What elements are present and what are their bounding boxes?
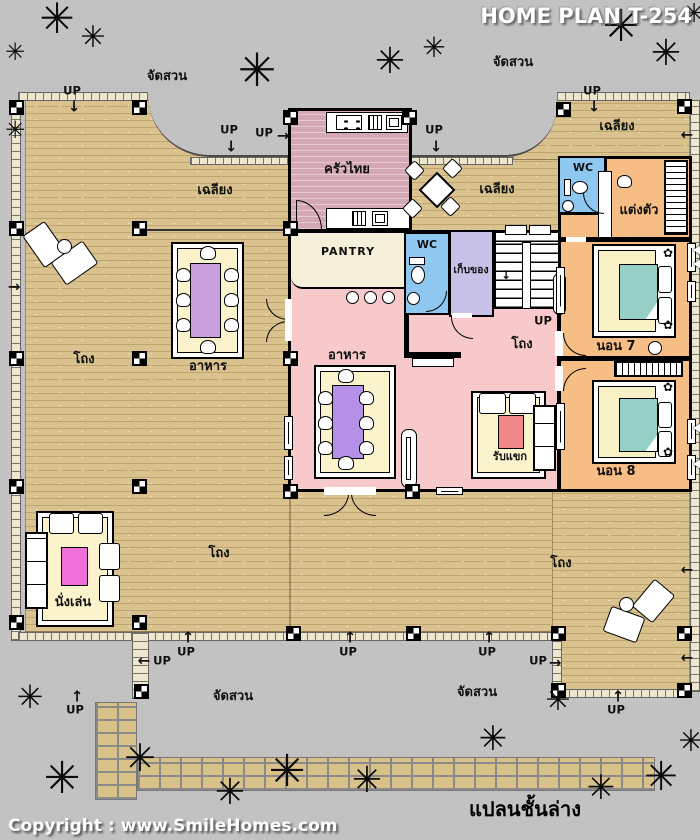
tree-icon: ✳ <box>422 34 445 62</box>
up-label: UP <box>153 655 171 668</box>
left-arrow-icon: ← <box>681 651 694 666</box>
left-arrow-icon: ← <box>138 654 151 669</box>
french-door-gap <box>324 487 376 495</box>
closet <box>614 361 683 377</box>
up-arrow-icon: ↑ <box>71 690 84 705</box>
stair-down-arrow-icon: ↓ <box>501 269 511 281</box>
left-arrow-icon: ← <box>681 563 694 578</box>
toilet-bowl-icon <box>411 266 425 284</box>
tree-icon: ✳ <box>644 757 678 797</box>
stool <box>382 291 395 304</box>
column <box>405 484 420 499</box>
tree-icon: ✳ <box>17 681 44 713</box>
casement-icon <box>693 258 700 270</box>
armchair <box>49 513 74 534</box>
dressing-label: แต่งตัว <box>620 204 659 218</box>
up-label: UP <box>529 655 547 668</box>
tree-icon: ✳ <box>545 686 570 716</box>
tree-icon: ✳ <box>269 750 306 794</box>
column <box>402 110 417 125</box>
column <box>132 479 147 494</box>
toilet-tank-icon <box>564 179 571 196</box>
armchair <box>479 393 506 414</box>
dining-chair <box>338 369 354 383</box>
wc-label: WC <box>573 162 593 174</box>
casement-icon <box>693 244 700 256</box>
door-leaf-slot <box>406 437 411 480</box>
sofa <box>25 532 48 609</box>
coffee-table <box>498 415 524 449</box>
dining-chair <box>359 441 374 455</box>
plant-icon: ✿ <box>663 381 673 393</box>
dressing-chair <box>617 175 632 188</box>
garden-label: จัดสวน <box>147 70 187 84</box>
column <box>677 99 692 114</box>
dining-chair <box>200 246 216 260</box>
column <box>9 351 24 366</box>
dining-chair <box>176 293 191 307</box>
hall-label: โถง <box>73 353 94 367</box>
stool <box>346 291 359 304</box>
tree-icon: ✳ <box>238 47 277 93</box>
sofa <box>533 405 556 471</box>
column <box>132 100 147 115</box>
kitchen-counter-bottom <box>326 208 410 229</box>
entrance-door-leaf <box>529 225 551 235</box>
column <box>677 683 692 698</box>
column <box>9 479 24 494</box>
dining-chair <box>318 416 333 430</box>
column <box>283 351 298 366</box>
pillow <box>658 266 672 293</box>
wc-label: WC <box>417 239 437 251</box>
closet <box>664 160 688 235</box>
dining-label: อาหาร <box>189 360 227 374</box>
door-gap <box>566 237 586 242</box>
right-arrow-icon: → <box>277 129 290 144</box>
right-arrow-icon: → <box>549 656 562 671</box>
entrance-door-leaf <box>505 225 527 235</box>
stair-rail <box>522 242 531 309</box>
floor-plan-page: { "header": { "title": "HOME PLAN T-254"… <box>0 0 700 840</box>
dining-chair <box>318 441 333 455</box>
tree-icon: ✳ <box>124 739 156 777</box>
tree-icon: ✳ <box>215 775 245 811</box>
dining-chair <box>338 456 354 470</box>
pantry-room <box>291 233 404 289</box>
sink-icon <box>372 211 388 226</box>
steps-porch-left <box>190 157 290 165</box>
stool <box>364 291 377 304</box>
column <box>551 626 566 641</box>
porch-label: เฉลียง <box>479 183 514 197</box>
up-label: UP <box>478 646 496 659</box>
column <box>9 100 24 115</box>
column <box>556 102 571 117</box>
dishrack-icon <box>368 115 382 130</box>
side-table <box>648 341 662 355</box>
tree-icon: ✳ <box>479 722 508 756</box>
column <box>283 110 298 125</box>
down-arrow-icon: ↓ <box>588 100 601 115</box>
steps-right-porch-top <box>556 92 690 101</box>
page-title: HOME PLAN T-254 <box>480 4 692 28</box>
bed-blanket <box>619 264 658 320</box>
up-label: UP <box>220 124 238 137</box>
up-label: UP <box>177 646 195 659</box>
storage-label: เก็บของ <box>453 265 488 277</box>
window <box>687 281 696 302</box>
window <box>284 416 293 450</box>
window <box>284 456 293 480</box>
down-arrow-icon: ↓ <box>430 140 443 155</box>
up-arrow-icon: ↑ <box>344 631 357 646</box>
up-label: UP <box>339 646 357 659</box>
tree-icon: ✳ <box>352 763 382 799</box>
sitting-table <box>61 547 88 586</box>
steps-left-edge <box>11 100 21 641</box>
up-label: UP <box>583 85 601 98</box>
washbasin-icon <box>407 292 420 305</box>
column <box>132 615 147 630</box>
column <box>677 626 692 641</box>
up-arrow-icon: ↑ <box>612 690 625 705</box>
column <box>132 221 147 236</box>
tree-icon: ✳ <box>80 23 105 53</box>
up-arrow-icon: ↑ <box>483 631 496 646</box>
stair-up-label: UP <box>534 315 552 328</box>
dining-chair <box>359 416 374 430</box>
side-table <box>57 239 72 254</box>
casement-icon <box>693 422 700 434</box>
dining-chair <box>176 268 191 282</box>
garden-label: จัดสวน <box>457 686 497 700</box>
dishrack-icon <box>352 211 366 226</box>
stove-icon <box>336 115 362 130</box>
bed-blanket <box>619 398 658 452</box>
bedroom8-label: นอน 8 <box>596 465 635 479</box>
dining-chair <box>200 340 216 354</box>
plant-icon: ✿ <box>663 247 673 259</box>
column <box>406 626 421 641</box>
plant-icon: ✿ <box>663 319 673 331</box>
column <box>283 221 298 236</box>
guest-label: รับแขก <box>493 451 527 463</box>
up-label: UP <box>425 124 443 137</box>
column <box>9 615 24 630</box>
left-arrow-icon: ← <box>681 128 694 143</box>
window <box>556 403 565 450</box>
down-arrow-icon: ↓ <box>225 140 238 155</box>
column <box>9 221 24 236</box>
porch-label: เฉลียง <box>197 184 232 198</box>
porch-label: เฉลียง <box>599 120 634 134</box>
hall-label: โถง <box>208 547 229 561</box>
bedroom7-label: นอน 7 <box>596 340 635 354</box>
window <box>556 267 565 314</box>
dining-chair <box>176 318 191 332</box>
column <box>134 684 149 699</box>
porch-edge-line <box>140 229 292 231</box>
tree-icon: ✳ <box>39 0 74 40</box>
toilet-tank-icon <box>409 257 425 265</box>
door-gap <box>555 366 563 391</box>
column <box>283 484 298 499</box>
washbasin-icon <box>562 200 574 212</box>
tree-icon: ✳ <box>678 727 700 757</box>
column <box>286 626 301 641</box>
french-door-gap <box>285 299 292 341</box>
garden-label: จัดสวน <box>213 690 253 704</box>
armchair <box>78 513 103 534</box>
outdoor-dining-table <box>190 263 221 338</box>
right-arrow-icon: → <box>8 280 21 295</box>
down-arrow-icon: ↓ <box>68 100 81 115</box>
sink-icon <box>386 115 402 130</box>
window <box>436 487 463 495</box>
column <box>132 351 147 366</box>
up-label: UP <box>255 127 273 140</box>
tree-icon: ✳ <box>5 118 25 142</box>
pillow <box>658 402 672 428</box>
hall-label: โถง <box>511 338 532 352</box>
door-gap <box>555 331 563 356</box>
dining-chair <box>318 391 333 405</box>
pantry-label: PANTRY <box>321 246 375 258</box>
shelf <box>412 358 454 367</box>
tree-icon: ✳ <box>5 40 25 64</box>
up-label: UP <box>607 704 625 717</box>
tree-icon: ✳ <box>651 36 681 72</box>
dining-label: อาหาร <box>328 349 366 363</box>
up-label: UP <box>63 85 81 98</box>
plant-icon: ✿ <box>663 446 673 458</box>
garden-label: จัดสวน <box>493 56 533 70</box>
tree-icon: ✳ <box>44 757 81 801</box>
armchair <box>99 543 120 570</box>
dining-chair <box>359 391 374 405</box>
up-arrow-icon: ↑ <box>182 631 195 646</box>
armchair <box>99 575 120 602</box>
side-table <box>619 597 634 612</box>
dining-chair <box>224 318 239 332</box>
kitchen-label: ครัวไทย <box>324 163 370 177</box>
plan-caption: แปลนชั้นล่าง <box>425 793 625 825</box>
copyright-text: Copyright : www.SmileHomes.com <box>8 816 337 836</box>
sitting-label: นั่งเล่น <box>55 596 92 610</box>
casement-icon <box>693 458 700 470</box>
dining-chair <box>224 268 239 282</box>
floor-plan: ครัวไทย PANTRY WC เก็บของ ↓ UP โถง อาหาร <box>0 0 700 840</box>
up-label: UP <box>66 704 84 717</box>
tree-icon: ✳ <box>375 44 405 80</box>
dining-chair <box>224 293 239 307</box>
hall-label: โถง <box>550 557 571 571</box>
steps-porch-mid <box>410 157 513 165</box>
armchair <box>509 393 536 414</box>
